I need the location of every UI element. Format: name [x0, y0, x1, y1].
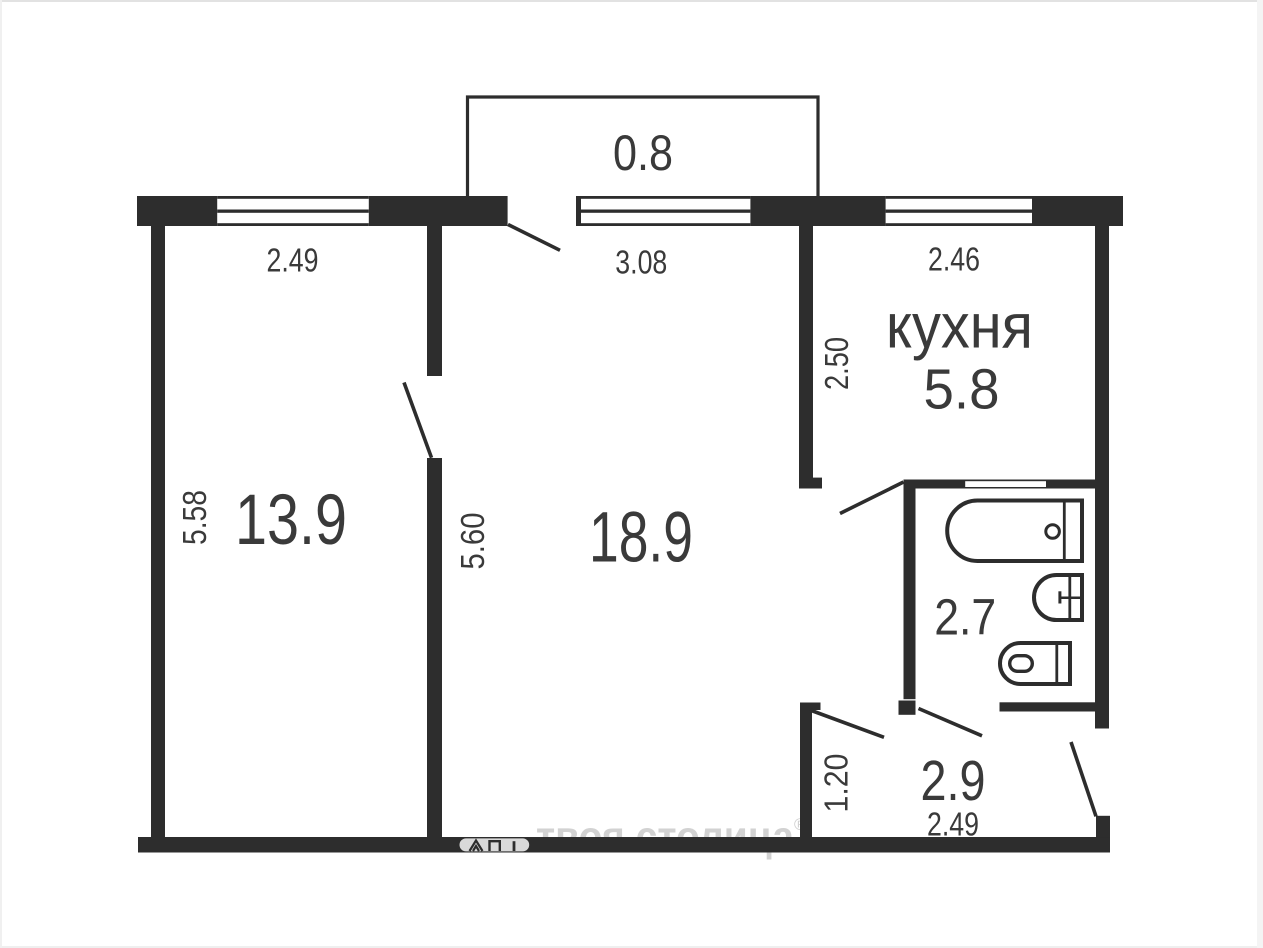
svg-text:13.9: 13.9	[235, 481, 347, 560]
svg-text:5.58: 5.58	[176, 490, 213, 545]
svg-text:2.46: 2.46	[928, 241, 980, 278]
svg-text:2.49: 2.49	[267, 242, 319, 279]
svg-text:5.60: 5.60	[454, 513, 491, 570]
svg-text:18.9: 18.9	[589, 499, 693, 578]
svg-text:3.08: 3.08	[615, 244, 667, 281]
svg-text:5.8: 5.8	[924, 358, 1000, 422]
svg-text:1.20: 1.20	[818, 754, 855, 813]
svg-text:0.8: 0.8	[613, 125, 673, 181]
svg-text:2.50: 2.50	[818, 337, 855, 390]
svg-text:2.9: 2.9	[921, 749, 986, 813]
svg-text:кухня: кухня	[886, 292, 1033, 362]
svg-text:2.7: 2.7	[934, 589, 996, 646]
svg-text:2.49: 2.49	[927, 806, 979, 843]
